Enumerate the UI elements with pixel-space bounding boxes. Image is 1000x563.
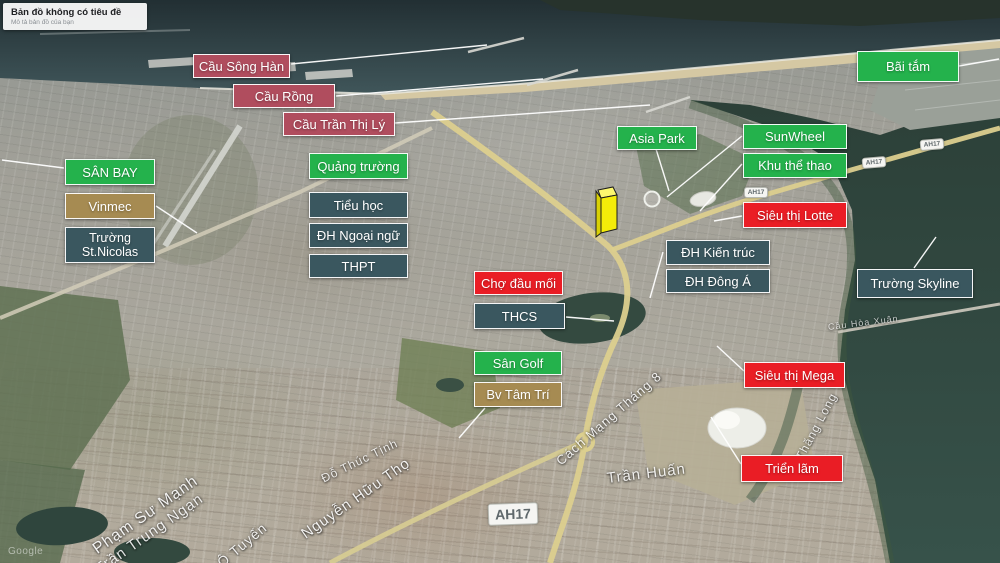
label-cau-tran-thi-ly[interactable]: Cầu Trần Thị Lý [283,112,395,136]
label-cau-song-han[interactable]: Cầu Sông Hàn [193,54,290,78]
label-dh-dong-a[interactable]: ĐH Đông Á [666,269,770,293]
label-bv-tam-tri[interactable]: Bv Tâm Trí [474,382,562,407]
label-truong-skyline[interactable]: Trường Skyline [857,269,973,298]
label-dh-ngoai-ngu[interactable]: ĐH Ngoại ngữ [309,223,408,248]
label-truong-st-nicolas[interactable]: Trường St.Nicolas [65,227,155,263]
label-sunwheel[interactable]: SunWheel [743,124,847,149]
label-vinmec[interactable]: Vinmec [65,193,155,219]
project-title: Bản đồ không có tiêu đề [11,7,139,18]
road-shield-ah17: AH17 [862,156,887,169]
google-watermark: Google [8,546,43,557]
project-subtitle: Mô tả bản đồ của bạn [11,19,139,26]
label-thcs[interactable]: THCS [474,303,565,329]
label-cho-dau-moi[interactable]: Chợ đầu mối [474,271,563,295]
label-trien-lam[interactable]: Triển lãm [741,455,843,482]
map-viewport[interactable]: Phạm Sư MạnhTrần Trung NgạnÔ TuyếnNguyễn… [0,0,1000,563]
label-thpt[interactable]: THPT [309,254,408,278]
label-asia-park[interactable]: Asia Park [617,126,697,150]
road-shield-ah17: AH17 [920,138,945,151]
label-dh-kien-truc[interactable]: ĐH Kiến trúc [666,240,770,265]
label-sieu-thi-lotte[interactable]: Siêu thị Lotte [743,202,847,228]
road-shield-ah17: AH17 [488,502,539,526]
label-bai-tam[interactable]: Bãi tắm [857,51,959,82]
project-info-card[interactable]: Bản đồ không có tiêu đề Mô tả bản đồ của… [3,3,147,30]
label-quang-truong[interactable]: Quảng trường [309,153,408,179]
label-tieu-hoc[interactable]: Tiểu học [309,192,408,218]
label-san-golf[interactable]: Sân Golf [474,351,562,375]
label-san-bay[interactable]: SÂN BAY [65,159,155,185]
label-sieu-thi-mega[interactable]: Siêu thị Mega [744,362,845,388]
label-cau-rong[interactable]: Cầu Rồng [233,84,335,108]
label-khu-the-thao[interactable]: Khu thể thao [743,153,847,178]
road-shield-ah17: AH17 [744,187,768,198]
